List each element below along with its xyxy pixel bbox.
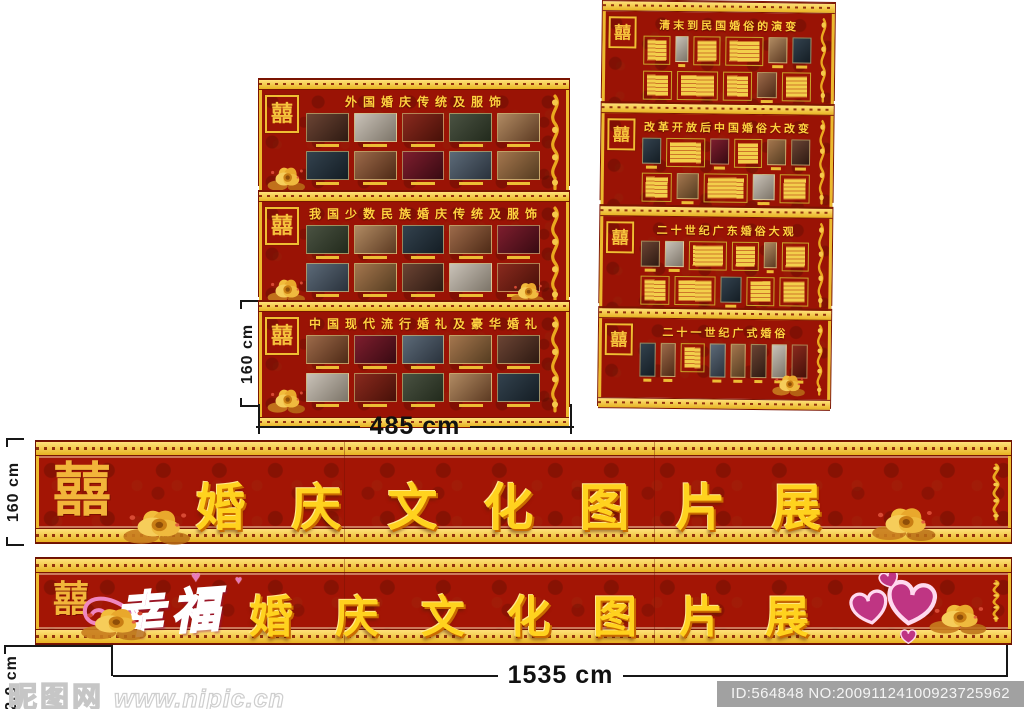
bracket-line-segment: [256, 426, 360, 428]
photo-cell: [306, 263, 349, 297]
gold-flourish-icon: [986, 579, 1006, 623]
double-happiness-char: 囍: [271, 215, 293, 237]
photo-placeholder: [449, 335, 492, 364]
document-block: [723, 72, 752, 101]
gold-flourish-icon: [986, 462, 1006, 522]
photo-cell: [449, 225, 492, 259]
photo-placeholder: [709, 343, 725, 377]
photo-caption: [507, 144, 531, 147]
photo-cell: [750, 344, 766, 383]
photo-caption: [645, 269, 655, 272]
photo-caption: [411, 366, 435, 369]
photo-caption: [363, 256, 387, 259]
document-block: [734, 139, 762, 168]
dimension-label: 485 cm: [370, 412, 461, 441]
photo-placeholder: [354, 263, 397, 292]
photo-placeholder: [306, 263, 349, 292]
double-happiness-char: 囍: [611, 229, 628, 246]
photo-cell: [449, 151, 492, 185]
document-block: [704, 173, 748, 203]
photo-cell: [497, 373, 540, 407]
banner-body: 囍 婚庆文化图片展: [36, 456, 1011, 528]
board-title: 中国现代流行婚礼及豪华婚礼: [302, 315, 544, 332]
photo-cell: [709, 343, 725, 382]
photo-placeholder: [768, 37, 787, 63]
bracket-line-segment: [470, 426, 574, 428]
board-border-top: [259, 301, 569, 312]
board-modern-wedding: 囍 中国现代流行婚礼及豪华婚礼: [258, 300, 570, 407]
board-body: 囍 清末到民国婚俗的演变: [602, 11, 835, 107]
board-reform-era: 囍 改革开放后中国婚俗大改变: [600, 101, 835, 203]
double-happiness-icon: 囍: [605, 323, 633, 355]
photo-placeholder: [764, 242, 778, 268]
banner-body: 囍 幸福 ♥ ♥ 婚庆文化图片展: [36, 573, 1011, 629]
dimension-label: 160 cm: [239, 323, 257, 383]
photo-placeholder: [402, 335, 445, 364]
photo-caption: [507, 256, 531, 259]
photo-caption: [754, 380, 763, 383]
photo-caption: [507, 294, 531, 297]
photo-cell: [402, 225, 445, 259]
photo-cell: [497, 225, 540, 259]
photo-placeholder: [641, 241, 660, 267]
document-block: [780, 277, 809, 306]
board-title: 我国少数民族婚庆传统及服饰: [302, 205, 544, 222]
double-happiness-char: 囍: [613, 126, 630, 143]
photo-caption: [316, 366, 340, 369]
photo-caption: [775, 380, 784, 383]
bracket-corner: [240, 300, 258, 309]
photo-caption: [363, 366, 387, 369]
photo-cell: [771, 344, 787, 383]
gold-flourish-icon: [544, 204, 566, 305]
double-happiness-char: 囍: [614, 24, 631, 41]
photo-cell: [354, 335, 397, 369]
photo-cell: [402, 151, 445, 185]
double-happiness-char: 囍: [271, 103, 293, 125]
bracket-line-segment: [113, 675, 498, 677]
photo-placeholder: [354, 225, 397, 254]
photo-row: [306, 263, 540, 297]
dimension-bottom-banner-height: 2.0 cm: [0, 645, 24, 709]
document-block: [782, 72, 811, 101]
document-block: [779, 174, 809, 203]
photo-cell: [354, 373, 397, 407]
double-happiness-icon: 囍: [607, 118, 635, 150]
photo-row: [306, 225, 540, 259]
photo-cell: [660, 343, 676, 382]
gold-flourish-icon: [815, 16, 832, 105]
photo-caption: [363, 294, 387, 297]
hearts-cluster-icon: [838, 573, 956, 647]
photo-cell: [449, 373, 492, 407]
board-minority-wedding: 囍 我国少数民族婚庆传统及服饰: [258, 190, 570, 297]
photo-placeholder: [792, 344, 808, 378]
content-row: [642, 138, 810, 171]
double-happiness-icon: 囍: [606, 221, 634, 253]
double-happiness-char: 囍: [610, 331, 627, 348]
photo-caption: [757, 202, 769, 205]
photo-caption: [316, 144, 340, 147]
dimension-label: 160 cm: [5, 462, 23, 522]
gold-flourish-icon: [544, 314, 566, 415]
photo-placeholder: [710, 138, 730, 164]
photo-placeholder: [402, 373, 445, 402]
photo-cell: [497, 263, 540, 297]
photo-cell: [354, 263, 397, 297]
photo-cell: [402, 113, 445, 147]
document-block: [732, 242, 759, 271]
board-body: 囍 二十一世纪广式婚俗: [598, 318, 831, 400]
board-border-top: [259, 79, 569, 90]
photo-caption: [733, 380, 742, 383]
photo-caption: [795, 167, 806, 170]
dimension-boards-height: 160 cm: [236, 300, 260, 407]
photo-placeholder: [660, 343, 676, 377]
photo-caption: [643, 379, 652, 382]
photo-cell: [402, 263, 445, 297]
document-block: [681, 343, 705, 372]
photo-caption: [363, 182, 387, 185]
photo-cell: [675, 36, 689, 67]
photo-row: [306, 151, 540, 185]
photo-cell: [354, 151, 397, 185]
photo-placeholder: [497, 263, 540, 292]
photo-cell: [449, 113, 492, 147]
photo-placeholder: [402, 225, 445, 254]
document-block: [642, 173, 672, 202]
photo-caption: [669, 269, 679, 272]
board-main: 清末到民国婚俗的演变: [639, 12, 816, 107]
content-blocks: [637, 138, 814, 209]
photo-placeholder: [306, 335, 349, 364]
photo-cell: [306, 225, 349, 259]
photo-cell: [710, 138, 730, 169]
gold-flourish-icon: [544, 92, 566, 193]
watermark-image-id: ID:564848 NO:20091124100923725962: [717, 681, 1024, 707]
photo-caption: [663, 379, 672, 382]
photo-cell: [764, 242, 778, 273]
photo-placeholder: [497, 113, 540, 142]
board-body: 囍 外国婚庆传统及服饰: [259, 90, 569, 195]
document-block: [782, 242, 809, 271]
banner-border-top: [36, 441, 1011, 456]
board-title: 改革开放后中国婚俗大改变: [638, 119, 814, 137]
photo-caption: [795, 380, 804, 383]
bracket-corner: [6, 537, 24, 546]
photo-placeholder: [752, 174, 774, 200]
photo-cell: [720, 277, 741, 308]
content-row: [641, 173, 809, 206]
photo-caption: [316, 294, 340, 297]
photo-cell: [449, 263, 492, 297]
photo-row: [306, 335, 540, 369]
double-happiness-icon: 囍: [265, 317, 299, 355]
photo-caption: [767, 270, 774, 273]
photo-placeholder: [642, 138, 662, 164]
photo-grid: [302, 113, 544, 188]
document-block: [746, 277, 775, 306]
photo-placeholder: [354, 335, 397, 364]
photo-caption: [459, 144, 483, 147]
photo-cell: [752, 174, 775, 205]
photo-placeholder: [756, 72, 777, 98]
photo-placeholder: [497, 373, 540, 402]
board-body: 囍 二十世纪广东婚俗大观: [599, 216, 832, 312]
photo-placeholder: [497, 335, 540, 364]
photo-caption: [507, 366, 531, 369]
board-body: 囍 改革开放后中国婚俗大改变: [600, 113, 833, 209]
photo-placeholder: [306, 113, 349, 142]
photo-placeholder: [730, 344, 746, 378]
board-20th-century-guangdong: 囍 二十世纪广东婚俗大观: [598, 204, 833, 306]
board-main: 改革开放后中国婚俗大改变: [637, 114, 814, 209]
photo-row: [306, 113, 540, 147]
photo-caption: [771, 167, 782, 170]
gold-flourish-icon: [813, 118, 830, 207]
document-block: [643, 71, 672, 100]
board-body: 囍 我国少数民族婚庆传统及服饰: [259, 202, 569, 307]
content-blocks: [636, 241, 813, 312]
board-main: 二十一世纪广式婚俗: [635, 319, 812, 400]
photo-caption: [316, 182, 340, 185]
photo-caption: [411, 256, 435, 259]
photo-placeholder: [771, 344, 787, 378]
banner-border-top: [36, 558, 1011, 573]
gold-flourish-icon: [812, 221, 829, 310]
board-main: 中国现代流行婚礼及豪华婚礼: [302, 312, 544, 417]
photo-placeholder: [767, 139, 787, 165]
photo-caption: [459, 294, 483, 297]
photo-placeholder: [792, 37, 811, 63]
content-blocks: [635, 343, 812, 387]
photo-row: [306, 373, 540, 407]
board-title: 二十世纪广东婚俗大观: [637, 222, 813, 240]
board-main: 我国少数民族婚庆传统及服饰: [302, 202, 544, 307]
photo-placeholder: [449, 225, 492, 254]
photo-cell: [792, 344, 808, 383]
photo-placeholder: [497, 225, 540, 254]
content-row: [643, 36, 811, 69]
photo-caption: [316, 256, 340, 259]
photo-cell: [792, 37, 811, 68]
photo-cell: [402, 373, 445, 407]
document-block: [674, 276, 715, 306]
photo-cell: [677, 173, 700, 204]
photo-placeholder: [402, 151, 445, 180]
photo-placeholder: [720, 277, 741, 303]
photo-cell: [306, 151, 349, 185]
gold-flourish-icon: [811, 323, 828, 398]
photo-cell: [306, 113, 349, 147]
board-body: 囍 中国现代流行婚礼及豪华婚礼: [259, 312, 569, 417]
bracket-line: 485 cm: [256, 412, 574, 441]
photo-cell: [639, 343, 655, 382]
photo-placeholder: [449, 263, 492, 292]
document-block: [676, 71, 717, 101]
photo-caption: [363, 144, 387, 147]
photo-placeholder: [306, 373, 349, 402]
board-foreign-wedding: 囍 外国婚庆传统及服饰: [258, 78, 570, 186]
photo-cell: [306, 335, 349, 369]
dimension-banner-width: 1535 cm: [113, 645, 1008, 677]
photo-placeholder: [751, 344, 767, 378]
photo-placeholder: [449, 151, 492, 180]
photo-cell: [766, 139, 786, 170]
board-title: 清末到民国婚俗的演变: [640, 17, 816, 35]
photo-cell: [402, 335, 445, 369]
photo-placeholder: [354, 373, 397, 402]
photo-cell: [497, 335, 540, 369]
photo-cell: [449, 335, 492, 369]
bottom-banner: 囍 幸福 ♥ ♥ 婚庆文化图片展: [35, 557, 1012, 645]
board-title: 二十一世纪广式婚俗: [636, 324, 812, 342]
photo-cell: [730, 344, 746, 383]
board-main: 外国婚庆传统及服饰: [302, 90, 544, 195]
double-happiness-icon: 囍: [608, 16, 636, 48]
double-happiness-icon: 囍: [265, 207, 299, 245]
photo-caption: [411, 182, 435, 185]
photo-placeholder: [665, 241, 684, 267]
photo-caption: [646, 166, 657, 169]
photo-placeholder: [449, 373, 492, 402]
photo-cell: [768, 37, 787, 68]
happiness-script-text: 幸福: [113, 569, 230, 647]
dimension-label: 1535 cm: [508, 661, 614, 690]
photo-placeholder: [639, 343, 655, 377]
dimension-label: 2.0 cm: [3, 655, 21, 709]
photo-cell: [665, 241, 684, 272]
photo-cell: [497, 113, 540, 147]
board-21st-century-cantonese: 囍 二十一世纪广式婚俗: [597, 306, 832, 409]
board-border-top: [259, 191, 569, 202]
document-block: [688, 241, 727, 270]
content-blocks: [639, 36, 816, 107]
photo-cell: [791, 139, 811, 170]
content-row: [639, 343, 807, 384]
board-qing-to-republic: 囍 清末到民国婚俗的演变: [601, 0, 836, 101]
photo-placeholder: [306, 225, 349, 254]
photo-placeholder: [354, 113, 397, 142]
small-heart-icon: ♥: [235, 573, 242, 587]
photo-cell: [354, 113, 397, 147]
photo-caption: [773, 65, 783, 68]
document-block: [693, 36, 720, 65]
document-block: [643, 36, 670, 65]
dimension-main-banner-height: 160 cm: [2, 438, 26, 546]
photo-caption: [713, 379, 722, 382]
photo-cell: [354, 225, 397, 259]
photo-grid: [302, 335, 544, 410]
small-heart-icon: ♥: [191, 569, 201, 587]
photo-caption: [678, 64, 685, 67]
photo-cell: [642, 138, 662, 169]
photo-caption: [797, 65, 807, 68]
photo-caption: [459, 366, 483, 369]
banner-title-text: 婚庆文化图片展: [39, 468, 978, 540]
bracket-line-segment: [623, 675, 1008, 677]
photo-placeholder: [791, 139, 811, 165]
photo-grid: [302, 225, 544, 300]
content-row: [641, 241, 809, 274]
photo-placeholder: [402, 263, 445, 292]
photo-cell: [756, 72, 777, 103]
design-canvas: 囍 外国婚庆传统及服饰 囍 我国少数民族婚庆传统及服饰: [0, 0, 1024, 709]
board-main: 二十世纪广东婚俗大观: [636, 217, 813, 312]
content-row: [640, 276, 808, 309]
photo-caption: [411, 294, 435, 297]
photo-placeholder: [402, 113, 445, 142]
photo-caption: [459, 256, 483, 259]
double-happiness-icon: 囍: [265, 95, 299, 133]
photo-cell: [641, 241, 660, 272]
photo-cell: [306, 373, 349, 407]
photo-placeholder: [306, 151, 349, 180]
content-row: [643, 71, 811, 104]
banner-title-text: 婚庆文化图片展: [249, 581, 851, 645]
annotation-line: [6, 645, 112, 647]
bracket-corner: [6, 438, 24, 447]
document-block: [725, 37, 764, 66]
photo-caption: [682, 201, 694, 204]
photo-cell: [497, 151, 540, 185]
double-happiness-char: 囍: [271, 325, 293, 347]
board-title: 外国婚庆传统及服饰: [302, 93, 544, 110]
photo-placeholder: [497, 151, 540, 180]
photo-placeholder: [677, 173, 699, 199]
photo-caption: [411, 144, 435, 147]
document-block: [666, 138, 705, 167]
photo-placeholder: [675, 36, 689, 62]
photo-caption: [714, 166, 725, 169]
main-banner: 囍 婚庆文化图片展: [35, 440, 1012, 544]
photo-placeholder: [449, 113, 492, 142]
document-block: [640, 276, 669, 305]
photo-caption: [459, 182, 483, 185]
photo-caption: [507, 182, 531, 185]
photo-placeholder: [354, 151, 397, 180]
dimension-boards-width: 485 cm: [256, 404, 574, 434]
